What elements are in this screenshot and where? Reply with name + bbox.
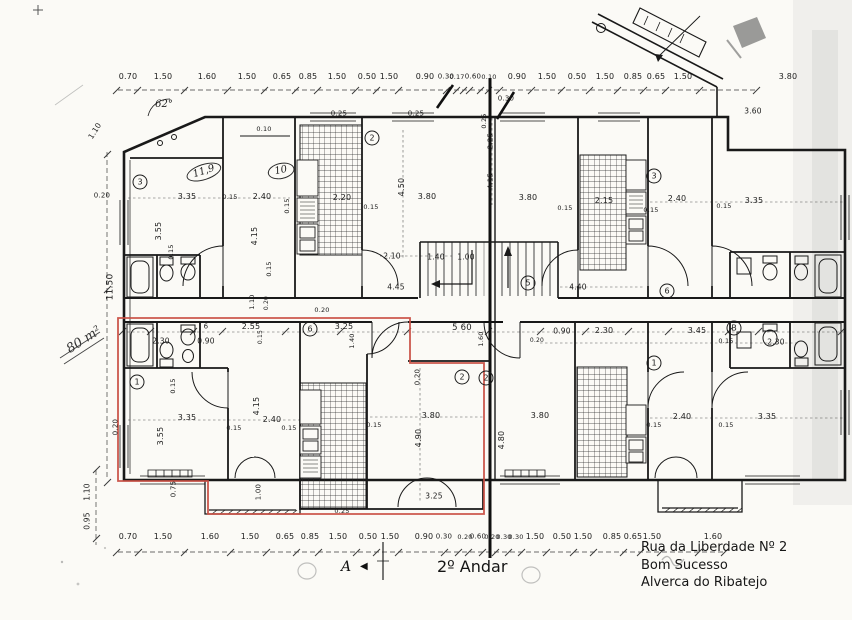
- party-wall-section-line: [437, 78, 514, 558]
- section-arrow-icon: ◀: [360, 561, 368, 572]
- address-block: Rua da Liberdade Nº 2 Bom Sucesso Alverc…: [641, 539, 787, 592]
- address-line-3: Alverca do Ribatejo: [641, 574, 787, 592]
- address-line-2: Bom Sucesso: [641, 557, 787, 575]
- section-marker-label: A: [341, 559, 351, 575]
- floor-title: 2º Andar: [437, 557, 507, 576]
- floorplan-canvas: 0.701.501.601.500.650.851.500.501.500.90…: [0, 0, 852, 620]
- plan-drawing: [0, 0, 852, 620]
- section-cut-mark: [377, 542, 389, 580]
- doors: [148, 99, 752, 507]
- address-line-1: Rua da Liberdade Nº 2: [641, 539, 787, 557]
- exterior-ramp: [592, 8, 723, 117]
